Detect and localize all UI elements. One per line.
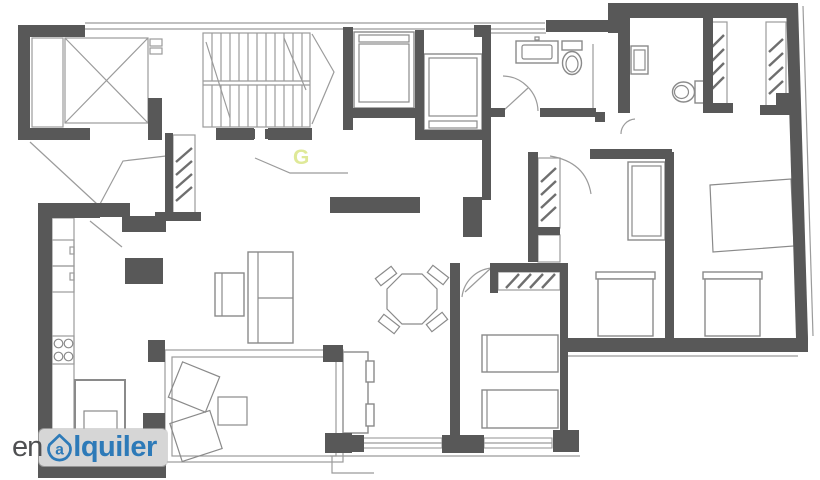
entry-door-jamb: [265, 129, 270, 139]
wall-segment: [323, 345, 343, 362]
stair-steps-lower: [212, 85, 302, 127]
sofa-armrest: [366, 404, 374, 426]
wall-segment: [553, 430, 579, 452]
bed: [628, 162, 665, 240]
wall-segment: [560, 338, 808, 352]
living-room: [215, 252, 374, 433]
right-bedroom-1: [596, 162, 665, 336]
wall-segment: [618, 3, 630, 113]
cabinet-box: [52, 240, 74, 266]
wall-segment: [352, 108, 416, 118]
logo-badge: a lquiler: [39, 429, 167, 466]
outline-line: [332, 456, 374, 473]
wall-segment: [38, 210, 52, 466]
closet-door-arc: [621, 119, 635, 134]
armchair-icon: [215, 273, 244, 316]
wall-segment: [703, 18, 713, 110]
cabinet-handle: [70, 273, 74, 280]
svg-text:a: a: [55, 441, 64, 458]
logo-house-a-icon: a: [44, 432, 75, 463]
wall-segment: [491, 108, 505, 117]
wall-segment: [325, 433, 352, 453]
dressing-area: [708, 22, 786, 108]
toilet-icon: [563, 52, 582, 75]
terrace-outline: [172, 357, 336, 456]
bed-headboard: [703, 272, 762, 279]
wall-segment: [703, 103, 733, 113]
wall-segment: [618, 3, 788, 18]
bedroom-door-arc: [550, 156, 591, 194]
middle-bedroom: [482, 272, 560, 428]
terrace-furniture: [168, 362, 219, 412]
cabinet-box: [538, 235, 560, 262]
wall-segment: [96, 203, 130, 217]
rug: [710, 179, 794, 252]
elevator-door-detail: [150, 48, 162, 54]
bedroom-b-bed: [424, 54, 482, 130]
bed: [482, 335, 558, 372]
bedroom-a-bed: [354, 32, 414, 108]
outline-line: [30, 142, 97, 204]
entry-wardrobe: [173, 135, 195, 215]
elevator-lobby: [32, 38, 63, 127]
wall-segment: [18, 128, 90, 140]
dining-area: [375, 265, 448, 333]
bed: [598, 279, 653, 336]
wall-segment: [590, 149, 672, 159]
wall-segment: [268, 128, 312, 140]
wall-segment: [463, 197, 482, 237]
wall-segment: [165, 133, 173, 218]
stair-break-line: [284, 38, 306, 90]
sofa-armrest: [366, 361, 374, 382]
wardrobe-box: [538, 158, 560, 228]
wardrobe-hatch-icon: [769, 39, 783, 94]
elevator-door-detail: [150, 39, 162, 46]
kitchen-door-leaf: [90, 221, 122, 247]
elevator-shaft: [65, 38, 148, 123]
floorplan-image: G en a lquiler: [0, 0, 820, 480]
wall-segment: [530, 227, 560, 235]
cabinet-handle: [70, 247, 74, 254]
cabinet-box: [52, 266, 74, 292]
watermark-logo: en a lquiler: [12, 429, 167, 466]
staircase: [203, 33, 310, 127]
wall-segment: [148, 98, 162, 140]
wall-segment: [450, 263, 460, 440]
sofa-icon: [343, 352, 368, 433]
faucet-icon: [535, 37, 539, 40]
bed: [424, 54, 482, 130]
outline-line: [312, 34, 334, 124]
wall-segment: [528, 152, 538, 262]
floor-plan-drawing: G: [0, 0, 820, 480]
wall-segment: [216, 128, 254, 140]
burner-icon: [54, 339, 63, 348]
wall-segment: [420, 130, 482, 140]
toilet-icon: [673, 82, 695, 102]
terrace-furniture: [218, 397, 247, 425]
logo-text-en: en: [12, 431, 42, 464]
wardrobe-hatch-icon: [506, 274, 555, 288]
entry-door-jamb: [250, 129, 255, 139]
wall-segment: [442, 435, 484, 453]
wall-segment: [18, 25, 30, 140]
burner-icon: [64, 352, 73, 361]
wall-segment: [148, 340, 165, 362]
bed-headboard: [596, 272, 655, 279]
terrace: [165, 350, 343, 462]
burner-icon: [64, 339, 73, 348]
hall-wardrobe: [538, 158, 560, 262]
wardrobe-hatch-icon: [176, 148, 192, 201]
wall-segment: [330, 197, 420, 213]
logo-text-rest: lquiler: [73, 431, 157, 464]
wall-segment: [155, 212, 201, 221]
terrace-furniture: [170, 410, 222, 461]
toilet-room: [631, 46, 705, 103]
wall-segment: [482, 28, 491, 200]
wall-segment: [415, 30, 424, 140]
bed: [482, 390, 558, 428]
dining-table-icon: [387, 274, 437, 324]
wall-segment: [125, 258, 163, 284]
wall-segment: [490, 263, 568, 272]
g-marker: G: [293, 146, 309, 169]
stair-steps-upper: [212, 33, 302, 81]
burner-icon: [54, 352, 63, 361]
wall-segment: [540, 108, 596, 117]
chair-icon: [426, 312, 447, 331]
bathroom-door-leaf: [503, 88, 528, 111]
right-bedroom-2: [703, 179, 794, 336]
toilet-tank: [562, 41, 582, 50]
wall-segment: [665, 152, 674, 340]
wall-segment: [490, 263, 498, 293]
wall-segment: [343, 27, 353, 130]
bed: [705, 279, 760, 336]
stair-break-line: [206, 42, 230, 118]
wall-segment: [595, 112, 605, 122]
bathroom-1: [516, 37, 582, 75]
outline-line: [100, 156, 166, 204]
chair-icon: [378, 314, 399, 333]
wardrobe-hatch-icon: [541, 168, 556, 221]
